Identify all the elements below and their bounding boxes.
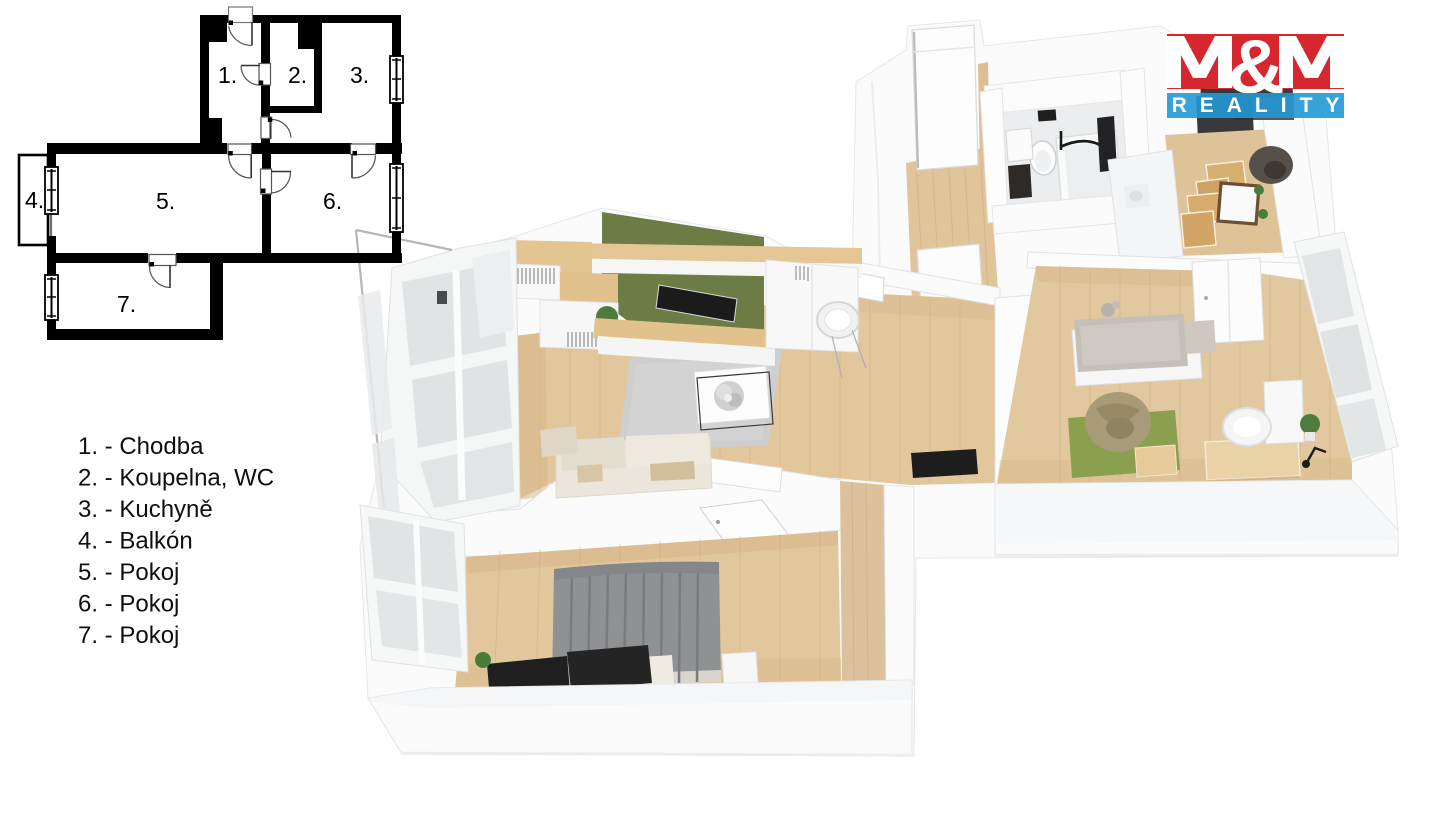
svg-text:4. - Balkón: 4. - Balkón [78, 528, 193, 555]
svg-text:1.: 1. [218, 62, 237, 88]
svg-text:REALITY: REALITY [1172, 94, 1353, 117]
svg-text:7. - Pokoj: 7. - Pokoj [78, 622, 179, 649]
svg-text:4.: 4. [25, 187, 44, 213]
svg-text:3. - Kuchyně: 3. - Kuchyně [78, 496, 213, 523]
svg-text:6. - Pokoj: 6. - Pokoj [78, 591, 179, 618]
svg-text:2. - Koupelna, WC: 2. - Koupelna, WC [78, 465, 274, 492]
svg-text:7.: 7. [117, 291, 136, 317]
svg-text:3.: 3. [350, 62, 369, 88]
svg-text:5. - Pokoj: 5. - Pokoj [78, 559, 179, 586]
svg-text:1. - Chodba: 1. - Chodba [78, 433, 204, 460]
svg-text:5.: 5. [156, 188, 175, 214]
svg-text:6.: 6. [323, 188, 342, 214]
svg-text:2.: 2. [288, 62, 307, 88]
